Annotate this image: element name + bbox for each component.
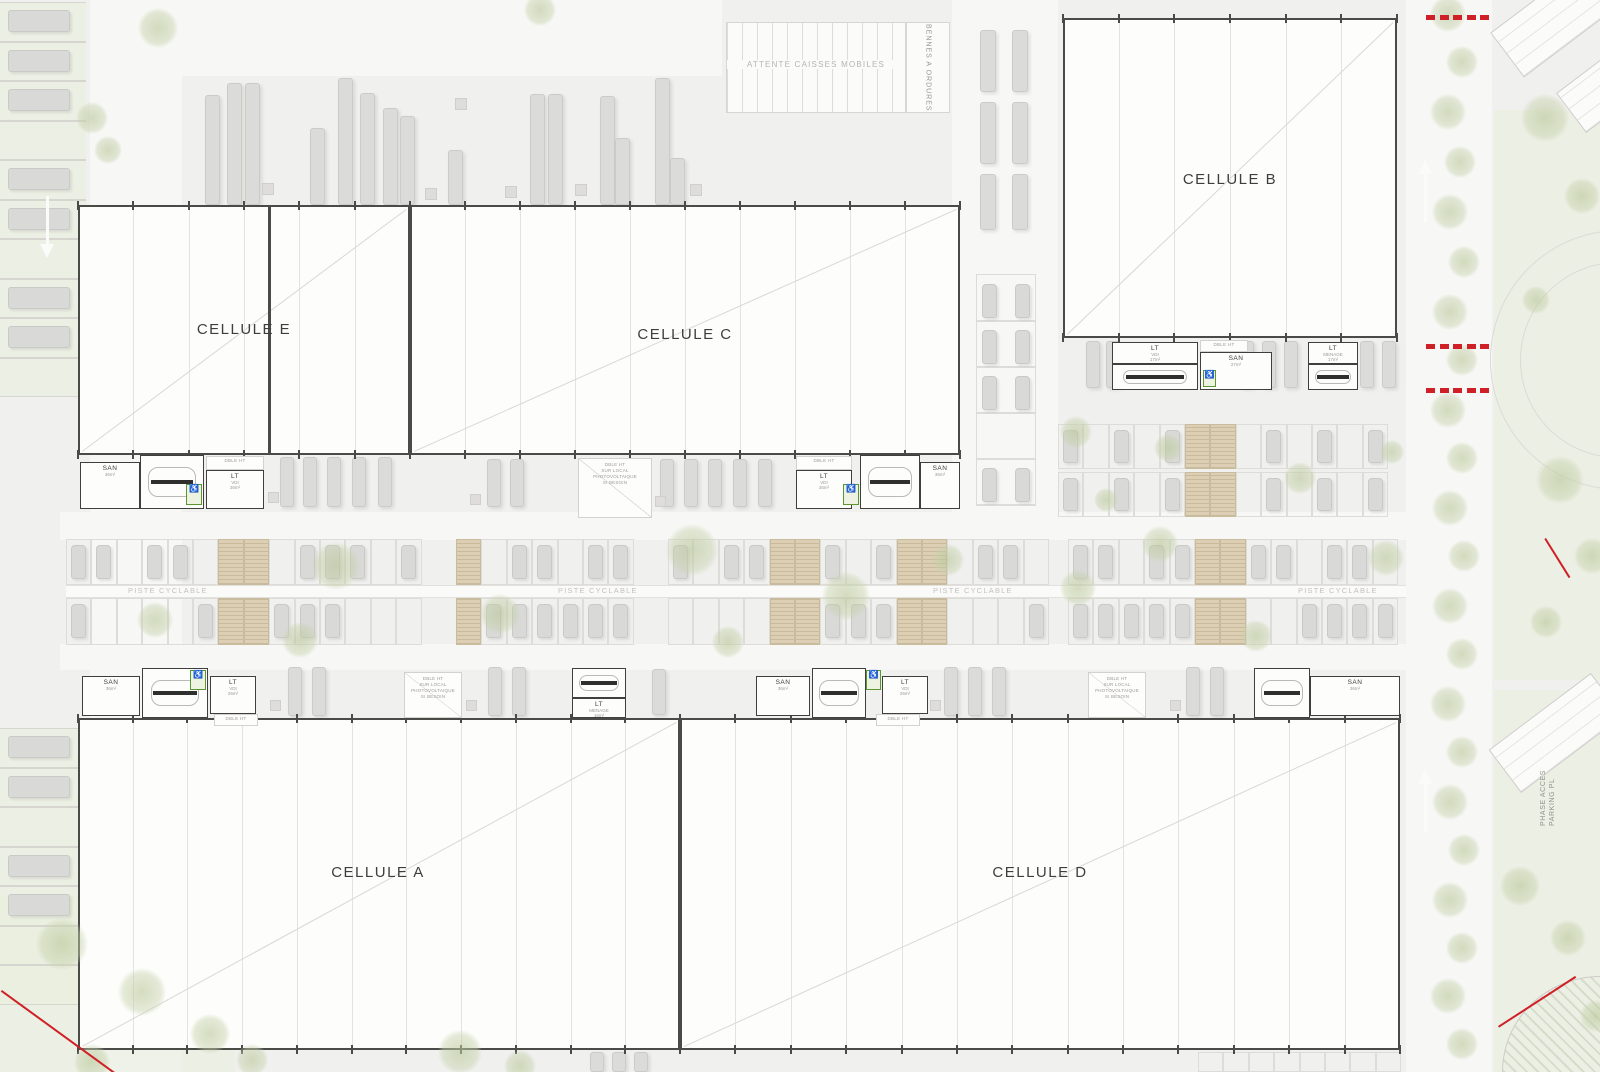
room-label: SAN [83,679,139,686]
room-area: 26m² [207,485,263,490]
parked-car [1073,604,1088,638]
parked-car [8,287,70,309]
parked-car [588,545,603,579]
parked-car [8,776,70,798]
truck [288,667,302,716]
column-tick [132,201,134,210]
tree [1432,294,1468,330]
parked-car [613,604,628,638]
road-arrow-head [40,244,54,258]
parked-car [537,604,552,638]
room-label: SAN [81,465,139,472]
column-tick [296,714,298,723]
tree [1448,246,1480,278]
parking-stall [1236,424,1261,469]
accessible-exit-marker: ♿ [186,484,202,505]
phase-acces-text: PHASE ACCES [1540,726,1547,826]
dock-buffer [455,98,467,110]
tree [1536,456,1584,504]
tree [1380,440,1404,464]
dock-buffer [1170,700,1181,711]
tree [1430,978,1466,1014]
parking-stall [1350,1052,1375,1072]
column-tick [1118,14,1120,23]
column-tick [739,201,741,210]
parked-car [1063,478,1078,511]
phasing-dash [1426,344,1435,349]
column-tick [186,1045,188,1054]
parking-stall [973,598,998,645]
parked-car [1003,545,1018,579]
column-tick [956,714,958,723]
parked-car [1266,430,1281,463]
tree [1550,920,1586,956]
column-tick [629,201,631,210]
parked-car [1114,430,1129,463]
tree [1368,540,1404,576]
dock-buffer [470,494,481,505]
tree [1432,490,1468,526]
dock-buffer [930,700,941,711]
ev-charging-stall [1185,424,1210,469]
cell-label-C: CELLULE C [615,326,755,343]
parking-stall [1297,539,1322,585]
truck [684,459,698,507]
parking-stall [481,539,506,585]
truck [312,667,326,716]
column-tick [734,714,736,723]
column-tick [1285,333,1287,342]
ev-charging-stall [922,598,947,645]
pv-label-line: SI BESOIN [579,480,651,486]
parked-car [978,545,993,579]
ev-charging-stall [770,539,795,585]
column-tick [354,450,356,459]
ev-charging-stall [770,598,795,645]
parked-car [147,545,162,579]
parking-stall [1236,472,1261,517]
tree [1564,178,1600,214]
phasing-dash [1480,15,1489,20]
parked-car [1266,478,1281,511]
truck [634,1052,648,1072]
column-tick [570,1045,572,1054]
truck [488,667,502,716]
stair-stringer [1317,375,1350,379]
truck [448,150,463,205]
column-tick [959,201,961,210]
parked-car [1352,545,1367,579]
dock-buffer [466,700,477,711]
parked-car [401,545,416,579]
dock-buffer [262,183,274,195]
stair-stringer [1264,691,1301,695]
column-tick [132,450,134,459]
parked-car [1015,468,1030,502]
tree [1142,526,1178,562]
truck [383,108,398,205]
parking-stall [117,539,142,585]
lt-room: LTVDI26m² [210,676,256,714]
parked-car [1317,430,1332,463]
parked-car [1368,478,1383,511]
tree [1446,442,1478,474]
tree [236,1044,268,1072]
column-tick [405,1045,407,1054]
parked-car [876,604,891,638]
dock-buffer [690,184,702,196]
lt-room: LTVDI17m² [1112,342,1198,364]
column-tick [1340,333,1342,342]
column-tick [1118,333,1120,342]
truck [1360,341,1374,388]
truck [590,1052,604,1072]
tree [1446,932,1478,964]
parked-car [173,545,188,579]
parking-stall [396,598,421,645]
parked-car [1378,604,1393,638]
parked-car [1327,604,1342,638]
phasing-dash [1480,388,1489,393]
room-area: 26m² [211,691,255,696]
parked-car [982,284,997,318]
column-tick [1233,714,1235,723]
parked-car [96,545,111,579]
lt-room: LTMENAGE17m² [1308,342,1358,364]
ev-charging-stall [795,598,820,645]
tree [1430,392,1466,428]
room-label: LT [1113,345,1197,352]
column-gridline [1123,721,1124,1047]
parked-car [1352,604,1367,638]
column-tick [1399,1045,1401,1054]
truck [205,95,220,205]
accessible-exit-marker: ♿ [866,670,881,690]
san-room: SAN36m² [920,462,960,509]
phasing-dash [1453,344,1462,349]
san-room: SAN36m² [82,676,140,716]
column-tick [1011,714,1013,723]
staircase [1112,364,1198,390]
column-gridline [242,721,243,1047]
truck [1012,102,1028,164]
column-tick [298,450,300,459]
column-tick [351,714,353,723]
tree [1446,638,1478,670]
parking-stall [668,598,693,645]
parked-car [8,855,70,877]
parking-stall [558,539,583,585]
stair-stringer [153,691,197,695]
room-label: LT [211,679,255,686]
tree [1530,606,1562,638]
parking-stall [1337,472,1362,517]
truck [280,457,294,507]
tree [1432,882,1468,918]
column-tick [77,201,79,210]
pv-label-line: SI BESOIN [405,694,461,700]
double-height-label: DBLE HT [1200,340,1248,352]
road [182,0,722,76]
parking-stall [947,598,972,645]
staircase [1254,668,1310,718]
truck [400,116,415,205]
room-area: 27m² [1201,362,1271,367]
parking-stall [1325,1052,1350,1072]
tree [1060,416,1092,448]
staircase [1308,364,1358,390]
column-tick [298,201,300,210]
parking-stall [1134,472,1159,517]
tree [1060,570,1096,606]
column-gridline [406,721,407,1047]
parked-car [563,604,578,638]
road-arrow [1424,782,1427,832]
truck [615,138,630,205]
column-tick [794,201,796,210]
truck [548,94,563,205]
stall-divider [976,458,1036,460]
parked-car [1098,604,1113,638]
phasing-dash [1440,344,1449,349]
road-arrow [1424,172,1427,222]
parking-stall [0,121,86,161]
column-tick [790,1045,792,1054]
tree [1521,94,1569,142]
truck [600,96,615,205]
truck [512,667,526,716]
column-tick [243,201,245,210]
column-tick [684,201,686,210]
column-tick [1396,333,1398,342]
column-tick [901,1045,903,1054]
room-area: 26m² [883,691,927,696]
parked-car [1251,545,1266,579]
tree [438,1030,482,1072]
tree [190,1014,230,1054]
parking-stall [345,598,370,645]
room-label: SAN [1201,355,1271,362]
room-area: 17m² [1113,357,1197,362]
column-tick [132,1045,134,1054]
phasing-dash [1440,15,1449,20]
tree [1446,1028,1478,1060]
phasing-dash [1467,15,1476,20]
column-gridline [461,721,462,1047]
parking-stall [1337,424,1362,469]
parked-car [982,376,997,410]
column-gridline [1341,21,1342,335]
truck [303,457,317,507]
stall-divider [976,366,1036,368]
tree [1448,834,1480,866]
column-gridline [516,721,517,1047]
road-arrow-head [1418,770,1432,784]
tree [1446,46,1478,78]
stair-stringer [1126,375,1183,379]
staircase [812,668,866,718]
ev-charging-stall [1195,539,1220,585]
parked-car [1302,604,1317,638]
column-gridline [575,208,576,452]
parked-car [876,545,891,579]
column-tick [77,714,79,723]
parking-stall [1024,539,1049,585]
column-tick [1173,14,1175,23]
parked-car [1317,478,1332,511]
parking-stall [1376,1052,1401,1072]
accessible-exit-marker: ♿ [1203,370,1216,387]
tree [1500,866,1540,906]
truck [655,78,670,205]
parked-car [71,604,86,638]
parked-car [8,208,70,230]
phasing-dash [1480,344,1489,349]
column-tick [354,201,356,210]
parking-stall [1271,598,1296,645]
parked-car [198,604,213,638]
parked-car [537,545,552,579]
parking-stall [91,598,116,645]
parked-car [588,604,603,638]
parking-stall [0,807,86,847]
column-tick [1288,1045,1290,1054]
column-gridline [1234,721,1235,1047]
column-gridline [520,208,521,452]
column-tick [77,450,79,459]
parking-stall [1198,1052,1223,1072]
truck [327,457,341,507]
staircase [860,455,920,509]
parking-pl-text: PARKING PL [1549,726,1556,826]
parking-stall [193,539,218,585]
parking-stall [998,598,1023,645]
column-tick [515,714,517,723]
ev-charging-stall [218,539,243,585]
room-label: LT [573,701,625,708]
parked-car [1124,604,1139,638]
parked-car [512,545,527,579]
parked-car [71,545,86,579]
tree [932,544,964,576]
column-tick [1067,1045,1069,1054]
truck [612,1052,626,1072]
ev-charging-stall [456,539,481,585]
dock-buffer [270,700,281,711]
parked-car [724,545,739,579]
cycle-path-label: PISTE CYCLABLE [128,586,208,595]
column-tick [296,1045,298,1054]
cycle-path-label: PISTE CYCLABLE [933,586,1013,595]
truck [1382,341,1396,388]
truck [1210,667,1224,716]
column-tick [956,1045,958,1054]
truck [980,102,996,164]
cell-label-E: CELLULE E [174,321,314,338]
truck [652,669,666,715]
parking-stall [744,598,769,645]
parking-stall [1223,1052,1248,1072]
truck [708,459,722,507]
site-plan: ATTENTE CAISSES MOBILES BENNES A ORDURES… [0,0,1600,1072]
photovoltaic-room-label: DBLE HTSUR LOCALPHOTOVOLTAIQUESI BESOIN [578,458,652,518]
ev-charging-stall [456,598,481,645]
column-tick [464,201,466,210]
parked-car [8,10,70,32]
column-gridline [957,721,958,1047]
column-gridline [846,721,847,1047]
photovoltaic-room-label: DBLE HTSUR LOCALPHOTOVOLTAIQUESI BESOIN [404,672,462,718]
ev-charging-stall [1220,539,1245,585]
tree [1446,736,1478,768]
column-gridline [1345,721,1346,1047]
column-tick [1229,14,1231,23]
ev-charging-stall [897,539,922,585]
stall-divider [976,320,1036,322]
tree [822,572,870,620]
ev-charging-stall [244,598,269,645]
tree [1094,488,1118,512]
column-tick [959,450,961,459]
tree [312,542,360,590]
truck [944,667,958,716]
column-gridline [735,721,736,1047]
double-height-label: DBLE HT [206,456,264,470]
truck [378,457,392,507]
tree [666,524,718,576]
parking-stall [371,598,396,645]
phasing-dash [1426,15,1435,20]
phasing-dash [1453,15,1462,20]
parked-car [613,545,628,579]
staircase [572,668,626,698]
column-gridline [795,208,796,452]
tree [282,622,318,658]
attente-caisses-mobiles-zone: ATTENTE CAISSES MOBILES [726,22,906,113]
column-tick [1062,14,1064,23]
column-tick [1173,333,1175,342]
ev-charging-stall [244,539,269,585]
truck [992,667,1006,716]
truck [352,457,366,507]
truck [733,459,747,507]
road-arrow-head [1418,160,1432,174]
room-area: 16m² [573,713,625,718]
column-tick [739,450,741,459]
column-gridline [902,721,903,1047]
truck [1086,341,1100,388]
parked-car [1175,604,1190,638]
truck [487,459,501,507]
column-tick [624,1045,626,1054]
tree [1284,462,1316,494]
tree [1430,686,1466,722]
accessible-exit-marker: ♿ [843,484,859,505]
column-tick [684,450,686,459]
tree [1154,434,1182,462]
parking-stall [1249,1052,1274,1072]
dock-buffer [505,186,517,198]
tree [1240,620,1272,652]
truck [1284,341,1298,388]
ev-charging-stall [897,598,922,645]
column-gridline [133,208,134,452]
double-height-label: DBLE HT [214,714,258,726]
column-tick [1062,333,1064,342]
parked-car [1098,545,1113,579]
column-tick [1011,1045,1013,1054]
column-tick [1233,1045,1235,1054]
